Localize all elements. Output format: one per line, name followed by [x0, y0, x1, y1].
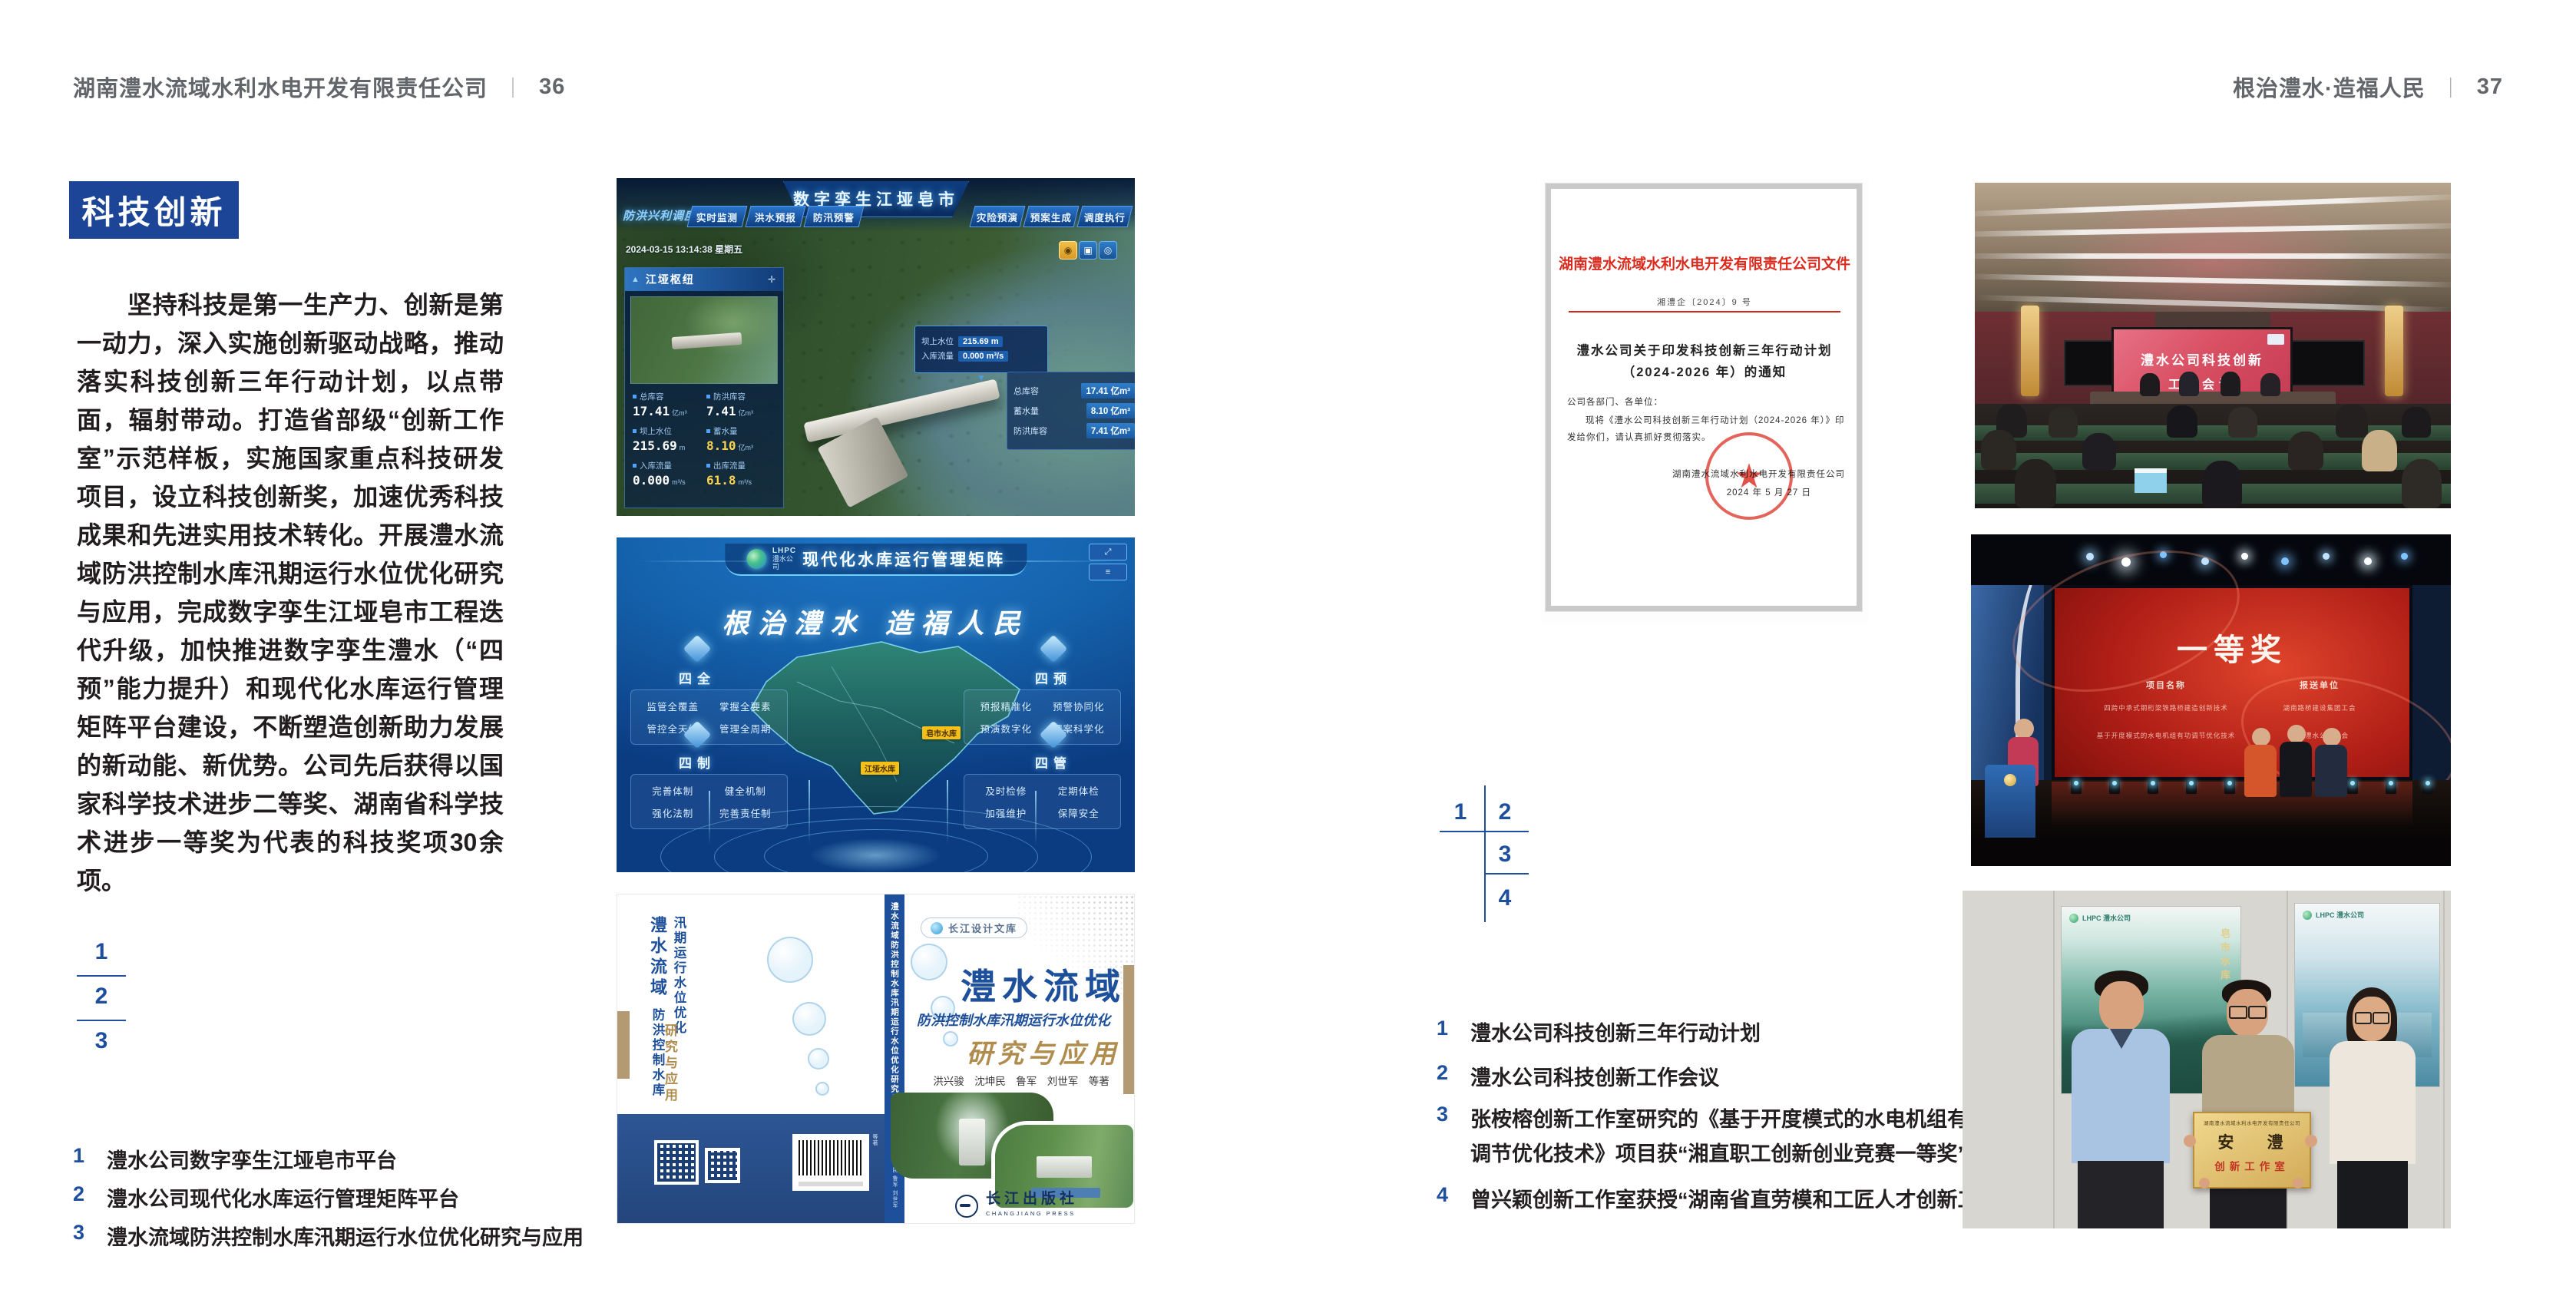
reservoir-tag[interactable]: 皂市水库 — [922, 726, 961, 739]
barcode — [792, 1134, 869, 1191]
document-body-line: 现将《澧水公司科技创新三年行动计划（2024-2026 年）》印 — [1567, 414, 1847, 426]
dam-thumbnail — [630, 296, 778, 384]
glasses-icon — [2248, 1006, 2267, 1019]
stat-unit: m³/s — [672, 478, 686, 486]
poster-caption: 皂市水库 — [2217, 928, 2231, 984]
spotlight — [2241, 553, 2248, 560]
page-number-right: 37 — [2477, 74, 2503, 100]
figure-digital-twin-platform: 数字孪生江垭皂市 防洪兴利调度 实时监测 洪水预报 防汛预警 灾险预演 预案生成… — [617, 178, 1135, 516]
tab-plan-generation[interactable]: 预案生成 — [1023, 206, 1080, 227]
stat-cell: 出库流量 61.8m³/s — [706, 460, 775, 488]
summary-row: 总库容 17.41 亿m³ — [1014, 383, 1135, 398]
figure-index-divider — [77, 1020, 126, 1021]
book-authors: 洪兴骏 沈坤民 鲁军 刘世军 等著 — [909, 1073, 1133, 1088]
logo-line: 澧水公司 — [772, 555, 796, 570]
plaque-subtitle: 创新工作室 — [2194, 1158, 2310, 1173]
tab-label: 防汛预警 — [813, 210, 855, 224]
book-title: 澧水流域 — [955, 959, 1132, 1010]
figure-book-cover: 澧水流域 防洪控制水库汛期运行水位优化 研究与应用 澧水流域防洪控制水库汛期运行… — [617, 894, 1135, 1224]
caption-text: 澧水公司现代化水库运行管理矩阵平台 — [107, 1182, 459, 1212]
figure-matrix-platform: LHPC 澧水公司 现代化水库运行管理矩阵 ⤢ ≡ 根治澧水 造福人民 皂市水库… — [617, 537, 1135, 872]
document-title: 澧水公司关于印发科技创新三年行动计划 — [1541, 340, 1868, 359]
caption-text: 澧水公司科技创新工作会议 — [1470, 1061, 1719, 1091]
stat-value: 215.69 — [633, 438, 677, 453]
caption-text: 澧水公司科技创新三年行动计划 — [1470, 1017, 1761, 1046]
person-legs — [2078, 1161, 2164, 1228]
caption-text: 澧水公司数字孪生江垭皂市平台 — [107, 1144, 397, 1174]
dam-shape — [1037, 1156, 1092, 1178]
series-logo-icon — [931, 922, 943, 934]
quadrant-name: 四管 — [1019, 752, 1088, 772]
summary-row: 防洪库容 7.41 亿m³ — [1014, 423, 1135, 438]
stage-light-fixture — [2347, 779, 2358, 794]
figure-index-divider — [1440, 831, 1529, 832]
summary-value: 8.10 亿m³ — [1086, 403, 1135, 418]
quadrant-item: 保障安全 — [1045, 805, 1113, 820]
quadrant-item: 预报精准化 — [972, 699, 1040, 713]
matrix-header: LHPC 澧水公司 现代化水库运行管理矩阵 — [725, 544, 1027, 576]
station-stats: 总库容 17.41亿m³ 防洪库容 7.41亿m³ 坝上水位 215.69m 蓄… — [625, 389, 783, 490]
audience-member — [2402, 459, 2442, 508]
caption-number: 2 — [1437, 1061, 1453, 1085]
locate-icon[interactable]: ◎ — [1099, 241, 1117, 260]
figure-index-number: 2 — [1490, 798, 1520, 826]
back-title: 澧水流域 — [648, 916, 667, 999]
expand-icon: ⤢ — [1105, 547, 1112, 557]
stat-label: 总库容 — [640, 391, 664, 402]
light-beam — [809, 780, 810, 845]
award-plaque: 湖南澧水流域水利水电开发有限责任公司 安 澧 创新工作室 — [2193, 1112, 2311, 1189]
summary-label: 总库容 — [1014, 385, 1039, 397]
stage-light-fixture — [2224, 779, 2235, 794]
stat-label: 入库流量 — [640, 460, 672, 471]
bubble-graphic — [792, 1002, 826, 1036]
document-body-line: 发给你们，请认真抓好贯彻落实。 — [1567, 431, 1847, 443]
layers-icon[interactable]: ▣ — [1079, 241, 1097, 260]
move-icon[interactable]: ✛ — [768, 274, 777, 285]
dashboard-mode-label: 防洪兴利调度 — [623, 207, 696, 223]
caption-number: 1 — [73, 1144, 90, 1168]
figure-caption: 3 张桉榕创新工作室研究的《基于开度模式的水电机组有功调节优化技术》项目获“湘直… — [1437, 1103, 2008, 1172]
document-number: 湘澧企〔2024〕9 号 — [1541, 296, 1868, 308]
stat-cell: 总库容 17.41亿m³ — [633, 391, 702, 419]
award-row-project: 基于开度模式的水电机组有功调节优化技术 — [2093, 731, 2239, 740]
audience-member — [2049, 407, 2078, 438]
bubble-graphic — [815, 1082, 829, 1096]
expand-button[interactable]: ⤢ — [1089, 544, 1127, 560]
audience-member — [2402, 407, 2431, 438]
stat-value: 7.41 — [706, 404, 736, 418]
left-running-header: 湖南澧水流域水利水电开发有限责任公司 ｜ 36 — [73, 71, 565, 103]
summary-label: 蓄水量 — [1014, 405, 1039, 417]
host-head — [2014, 719, 2034, 739]
screen-title: 澧水公司科技创新 — [2114, 349, 2290, 369]
presidium-member — [2221, 372, 2240, 396]
podium-logo — [2004, 774, 2016, 786]
hand — [2305, 1135, 2317, 1147]
tooltip-row: 入库流量 0.000 m³/s — [921, 350, 1041, 362]
tooltip-row: 坝上水位 215.69 m — [921, 336, 1041, 347]
spotlight — [2401, 553, 2408, 560]
recipient-figure-navy — [2315, 745, 2347, 797]
screen-logo-chip — [2267, 334, 2284, 345]
award-row-unit: 湖南路桥建设集团工会 — [2247, 703, 2392, 713]
person-face — [2099, 981, 2144, 1032]
quadrant-name: 四制 — [663, 752, 732, 772]
column-header: 报送单位 — [2254, 679, 2385, 691]
award-title: 一等奖 — [2055, 625, 2409, 670]
tooltip-value: 0.000 m³/s — [958, 351, 1008, 362]
podium — [1985, 765, 2035, 838]
audience-member — [2202, 461, 2242, 508]
body-paragraph: 坚持科技是第一生产力、创新是第一动力，深入实施创新驱动战略，推动落实科技创新三年… — [77, 286, 504, 900]
quadrant-item: 预演数字化 — [972, 721, 1040, 736]
tab-flood-warning[interactable]: 防汛预警 — [804, 206, 865, 227]
publisher-name: 长江出版社 — [986, 1191, 1078, 1206]
qr-code — [654, 1140, 699, 1185]
wall-seam — [2443, 891, 2445, 1228]
caption-text: 澧水流域防洪控制水库汛期运行水位优化研究与应用 — [107, 1221, 584, 1251]
tooltip-label: 坝上水位 — [921, 336, 954, 347]
stat-value: 8.10 — [706, 438, 736, 453]
quadrant-item: 健全机制 — [712, 783, 780, 798]
stat-unit: 亿m³ — [739, 409, 754, 417]
header-divider: ｜ — [2441, 73, 2462, 101]
document-red-header: 湖南澧水流域水利水电开发有限责任公司文件 — [1555, 253, 1854, 273]
stat-label: 防洪库容 — [713, 391, 746, 402]
figure-index-divider — [1484, 873, 1529, 875]
caption-number: 2 — [73, 1182, 90, 1206]
recipient-head — [2323, 728, 2341, 746]
stage-light-fixture — [2386, 779, 2396, 794]
matrix-title: 现代化水库运行管理矩阵 — [802, 547, 1005, 570]
spotlight — [2364, 557, 2372, 565]
light-beam — [709, 791, 710, 845]
lhpc-logo-text: LHPC 澧水公司 — [772, 547, 796, 570]
hand — [2199, 1178, 2210, 1189]
stage-light-fixture — [2071, 779, 2082, 794]
tooltip-value: 215.69 m — [958, 336, 1003, 347]
lhpc-logo: LHPC 澧水公司 — [2069, 913, 2131, 923]
caption-number: 3 — [73, 1221, 90, 1245]
caption-number: 3 — [1437, 1103, 1453, 1126]
menu-button[interactable]: ≡ — [1089, 564, 1127, 580]
stat-label: 蓄水量 — [713, 425, 738, 437]
audience-member — [2362, 430, 2397, 471]
recipient-head — [2287, 725, 2306, 743]
quadrant-name: 四预 — [1019, 668, 1088, 687]
stat-unit: m³/s — [739, 478, 752, 486]
lhpc-logo-icon — [746, 549, 766, 569]
audience-member — [2336, 404, 2368, 438]
map-tooltip: 坝上水位 215.69 m 入库流量 0.000 m³/s ▼ — [914, 326, 1048, 373]
series-logo: 长江设计文库 — [921, 918, 1027, 938]
stat-value: 0.000 — [633, 473, 670, 488]
audience-member — [1981, 430, 2016, 470]
audience-member — [2082, 433, 2116, 470]
glasses-icon — [2373, 1012, 2389, 1024]
series-logo-text: 长江设计文库 — [948, 921, 1017, 935]
stat-value: 61.8 — [706, 473, 736, 488]
bubble-graphic — [808, 1048, 829, 1070]
stat-cell: 坝上水位 215.69m — [633, 425, 702, 454]
figure-index-divider — [1484, 785, 1486, 922]
hologram-glow — [810, 838, 941, 872]
presidium-member — [2140, 373, 2160, 396]
header-divider: ｜ — [503, 73, 524, 101]
recipient-figure-orange — [2244, 745, 2277, 797]
wall-tv — [2291, 340, 2365, 386]
quadrant-item: 管理全周期 — [712, 721, 780, 736]
quadrant-item: 强化法制 — [639, 805, 707, 820]
figure-caption: 1 澧水公司科技创新三年行动计划 — [1437, 1017, 1761, 1046]
dashboard-timestamp: 2024-03-15 13:14:38 星期五 — [626, 243, 742, 256]
document-salutation: 公司各部门、各单位： — [1567, 395, 1663, 408]
spotlight — [2086, 553, 2094, 560]
light-beam — [947, 780, 948, 845]
lhpc-logo-text: LHPC 澧水公司 — [2082, 913, 2131, 923]
glasses-icon — [2229, 1006, 2247, 1019]
red-divider — [1569, 311, 1840, 312]
right-running-header: 根治澧水·造福人民 ｜ 37 — [2233, 71, 2503, 103]
icon-glyph: ◎ — [1104, 245, 1112, 256]
figure-official-document: 湖南澧水流域水利水电开发有限责任公司文件 湘澧企〔2024〕9 号 澧水公司关于… — [1541, 179, 1868, 623]
lhpc-logo-text: LHPC 澧水公司 — [2316, 910, 2364, 920]
quadrant-item: 完善体制 — [639, 783, 707, 798]
lhpc-logo: LHPC 澧水公司 — [2303, 910, 2364, 920]
presidium-member — [2260, 373, 2280, 396]
gold-light-pillar — [2385, 306, 2403, 396]
tan-accent-block — [617, 1011, 630, 1079]
publisher-mark: 长江出版社 CHANGJIANG PRESS — [955, 1191, 1078, 1222]
figure-index-number: 3 — [1490, 841, 1520, 868]
user-icon[interactable]: ◉ — [1059, 241, 1077, 260]
lhpc-logo-icon — [2303, 911, 2312, 920]
ceiling-light — [1975, 253, 2451, 259]
person-legs — [2337, 1161, 2408, 1228]
station-info-panel: ▲ 江垭枢纽 ✛ 总库容 17.41亿m³ 防洪库容 7.41亿m³ 坝上水位 … — [624, 267, 784, 508]
light-beam — [1035, 791, 1037, 845]
tab-dispatch-execution[interactable]: 调度执行 — [1077, 206, 1133, 227]
summary-value: 7.41 亿m³ — [1086, 423, 1135, 438]
icon-glyph: ▣ — [1083, 245, 1092, 256]
panel-header: ▲ 江垭枢纽 ✛ — [625, 268, 783, 291]
quadrant-item: 预警协同化 — [1045, 699, 1113, 713]
pyramid-icon: ▲ — [631, 275, 641, 284]
caption-text: 张桉榕创新工作室研究的《基于开度模式的水电机组有功调节优化技术》项目获“湘直职工… — [1470, 1103, 2008, 1172]
caption-number: 1 — [1437, 1017, 1453, 1040]
figure-caption: 1 澧水公司数字孪生江垭皂市平台 — [73, 1144, 397, 1174]
tab-label: 洪水预报 — [755, 210, 796, 224]
tab-flood-forecast[interactable]: 洪水预报 — [746, 206, 806, 227]
tab-realtime-monitoring[interactable]: 实时监测 — [687, 206, 748, 227]
stat-cell: 蓄水量 8.10亿m³ — [706, 425, 775, 454]
stat-value: 17.41 — [633, 404, 670, 418]
tab-label: 预案生成 — [1030, 210, 1072, 224]
red-seal: ★ — [1705, 432, 1793, 520]
figure-index-divider — [77, 975, 126, 977]
caret-down-icon: ▼ — [977, 372, 986, 383]
stat-unit: 亿m³ — [672, 409, 687, 417]
publisher-logo-icon — [955, 1195, 978, 1218]
figure-caption: 2 澧水公司现代化水库运行管理矩阵平台 — [73, 1182, 459, 1212]
quadrant-item: 监管全覆盖 — [639, 699, 707, 713]
slogan-text: 根治澧水·造福人民 — [2233, 71, 2426, 103]
star-icon: ★ — [1734, 457, 1764, 496]
person-torso-blue-polo — [2072, 1029, 2170, 1163]
recipient-head — [2252, 728, 2270, 746]
stat-label: 出库流量 — [713, 460, 746, 471]
document-title: （2024-2026 年）的通知 — [1541, 362, 1868, 380]
tooltip-label: 入库流量 — [921, 350, 954, 362]
audience-member — [2288, 431, 2323, 470]
bubble-graphic — [767, 937, 813, 983]
magazine-spread: 湖南澧水流域水利水电开发有限责任公司 ｜ 36 根治澧水·造福人民 ｜ 37 科… — [0, 0, 2576, 1306]
quadrant-name: 四全 — [663, 668, 732, 687]
tab-label: 调度执行 — [1084, 210, 1126, 224]
quadrant-item: 掌握全要素 — [712, 699, 780, 713]
person-torso-white-shirt — [2330, 1041, 2416, 1164]
reservoir-tag[interactable]: 江垭水库 — [861, 762, 899, 775]
stage-light-fixture — [2422, 779, 2433, 794]
glasses-icon — [2355, 1012, 2372, 1024]
spillway-shape — [959, 1119, 985, 1166]
caption-text: 曾兴颖创新工作室获授“湖南省直劳模和工匠人才创新工作室” — [1470, 1183, 2030, 1213]
panel-title: 江垭枢纽 — [646, 272, 695, 287]
wall-seam — [2053, 891, 2055, 1228]
tan-accent-block — [1123, 965, 1135, 1094]
figure-index-number: 3 — [86, 1027, 117, 1055]
book-subtitle-2: 研究与应用 — [955, 1033, 1132, 1070]
stage-light-fixture — [2109, 779, 2120, 794]
stage-light-fixture — [2148, 779, 2158, 794]
summary-label: 防洪库容 — [1014, 425, 1047, 437]
presidium-member — [2179, 372, 2199, 396]
plaque-title: 安 澧 — [2205, 1130, 2310, 1153]
figure-group-photo: LHPC 澧水公司 皂市水库 LHPC 澧水公司 湖南澧水流域水利水电开发有限责… — [1963, 891, 2451, 1228]
icon-glyph: ◉ — [1064, 245, 1072, 256]
tab-risk-rehearsal[interactable]: 灾险预演 — [970, 206, 1026, 227]
spotlight — [2323, 553, 2330, 560]
stat-unit: 亿m³ — [739, 444, 754, 451]
tab-label: 实时监测 — [696, 210, 738, 224]
recipient-figure-suit — [2280, 742, 2312, 797]
bubble-graphic — [911, 944, 947, 980]
gold-light-pillar — [2021, 306, 2039, 396]
stat-unit: m — [680, 444, 686, 451]
figure-award-stage-photo: 一等奖 项目名称 报送单位 四跨中承式钢桁梁铁路桥建造创新技术 湖南路桥建设集团… — [1971, 534, 2451, 866]
audience-member — [2228, 407, 2257, 438]
quadrant-item: 定期体检 — [1045, 783, 1113, 798]
summary-value: 17.41 亿m³ — [1081, 383, 1135, 398]
stat-label: 坝上水位 — [640, 425, 672, 437]
menu-icon: ≡ — [1106, 567, 1110, 577]
figure-index-number: 4 — [1490, 884, 1520, 912]
stage-light-fixture — [2186, 779, 2197, 794]
summary-row: 蓄水量 8.10 亿m³ — [1014, 403, 1135, 418]
lhpc-logo-icon — [2069, 914, 2078, 923]
stat-cell: 防洪库容 7.41亿m³ — [706, 391, 775, 419]
figure-meeting-photo: 澧水公司科技创新 工作会议 — [1975, 183, 2451, 508]
quadrant-item: 及时检修 — [972, 783, 1040, 798]
figure-caption: 4 曾兴颖创新工作室获授“湖南省直劳模和工匠人才创新工作室” — [1437, 1183, 2030, 1213]
hand — [2184, 1135, 2196, 1147]
page-number-left: 36 — [539, 74, 565, 100]
plaque-header: 湖南澧水流域水利水电开发有限责任公司 — [2194, 1119, 2310, 1126]
hand — [2293, 1178, 2303, 1189]
reservoir-summary-panel: 总库容 17.41 亿m³ 蓄水量 8.10 亿m³ 防洪库容 7.41 亿m³ — [1007, 372, 1135, 450]
back-cover-subtitle: 研究与应用 — [660, 1023, 680, 1123]
dam-shape — [672, 332, 742, 349]
caption-number: 4 — [1437, 1183, 1453, 1207]
column-header: 项目名称 — [2101, 679, 2231, 691]
spotlight — [2281, 557, 2289, 565]
audience-member — [2015, 459, 2056, 508]
figure-index-number: 1 — [1445, 798, 1476, 826]
led-screen: 一等奖 项目名称 报送单位 四跨中承式钢桁梁铁路桥建造创新技术 湖南路桥建设集团… — [2052, 585, 2412, 780]
company-name: 湖南澧水流域水利水电开发有限责任公司 — [73, 71, 488, 103]
book-subtitle: 防洪控制水库汛期运行水位优化 — [894, 1010, 1133, 1030]
tab-label: 灾险预演 — [977, 210, 1018, 224]
figure-index-number: 1 — [86, 938, 117, 966]
audience-member — [2167, 405, 2197, 438]
tissue-box — [2135, 468, 2167, 493]
figure-caption: 2 澧水公司科技创新工作会议 — [1437, 1061, 1719, 1091]
logo-line: LHPC — [772, 547, 796, 555]
award-row-project: 四跨中承式钢桁梁铁路桥建造创新技术 — [2093, 703, 2239, 713]
publisher-name-en: CHANGJIANG PRESS — [986, 1206, 1078, 1222]
stat-cell: 入库流量 0.000m³/s — [633, 460, 702, 488]
qr-code — [705, 1148, 740, 1183]
figure-index-number: 2 — [86, 983, 117, 1010]
section-badge: 科技创新 — [69, 181, 239, 239]
figure-caption: 3 澧水流域防洪控制水库汛期运行水位优化研究与应用 — [73, 1221, 584, 1251]
